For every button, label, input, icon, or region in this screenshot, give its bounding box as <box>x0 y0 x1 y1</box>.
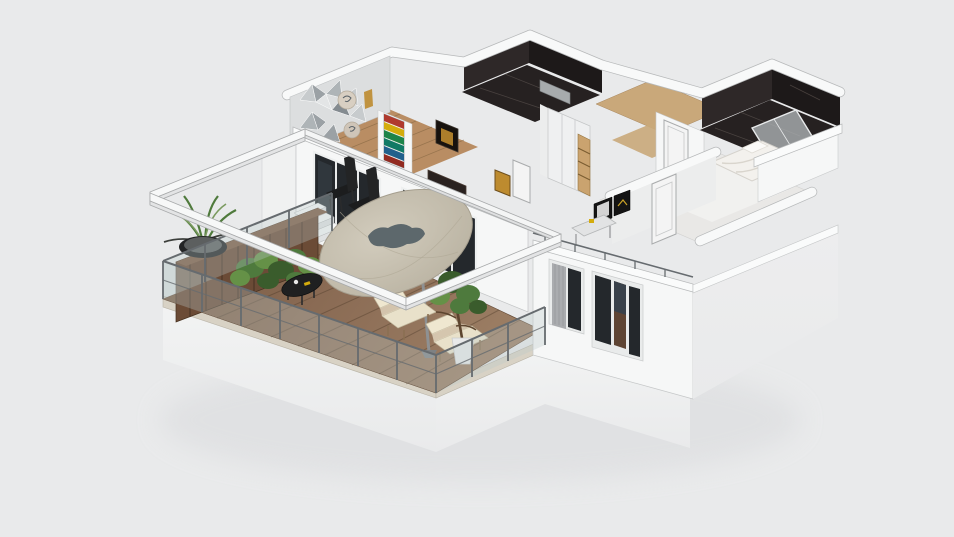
artwork-chevron <box>384 114 404 168</box>
hall-door-2 <box>513 160 530 203</box>
desk-item <box>589 219 594 223</box>
wardrobe-side <box>540 104 548 178</box>
decor-plate-1 <box>338 91 356 109</box>
decor-seahorse-gold <box>364 89 373 109</box>
decor-plate-2 <box>344 122 360 138</box>
window-2-pane-1 <box>595 275 611 345</box>
window-1-glass-pane <box>568 268 581 331</box>
floorplan-render-canvas <box>0 0 954 537</box>
floorplan-3d-viewport[interactable] <box>0 0 954 537</box>
window-2-pane-3 <box>629 286 640 357</box>
wardrobe-shelves <box>578 134 590 196</box>
